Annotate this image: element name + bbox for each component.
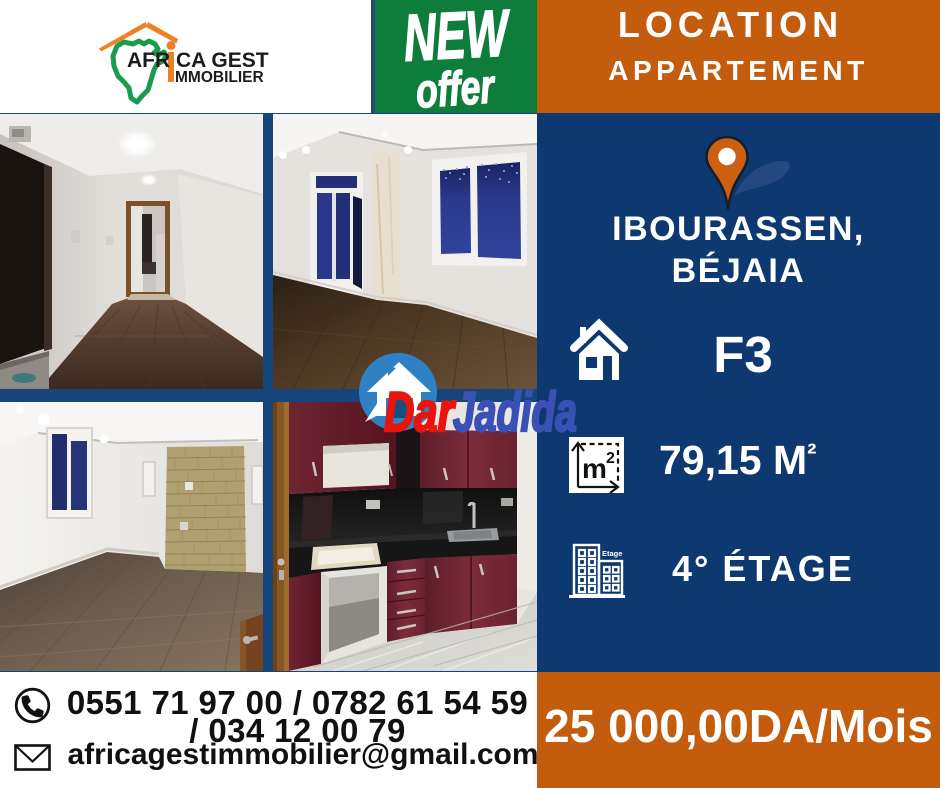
svg-text:AFR: AFR xyxy=(127,49,170,72)
svg-text:offer: offer xyxy=(414,60,497,113)
svg-text:Dar: Dar xyxy=(384,380,456,437)
svg-text:MMOBILIER: MMOBILIER xyxy=(175,69,264,86)
svg-text:m: m xyxy=(582,453,607,484)
svg-text:Jadida: Jadida xyxy=(453,380,577,437)
svg-text:Etage: Etage xyxy=(602,549,622,558)
svg-text:2: 2 xyxy=(606,450,615,467)
